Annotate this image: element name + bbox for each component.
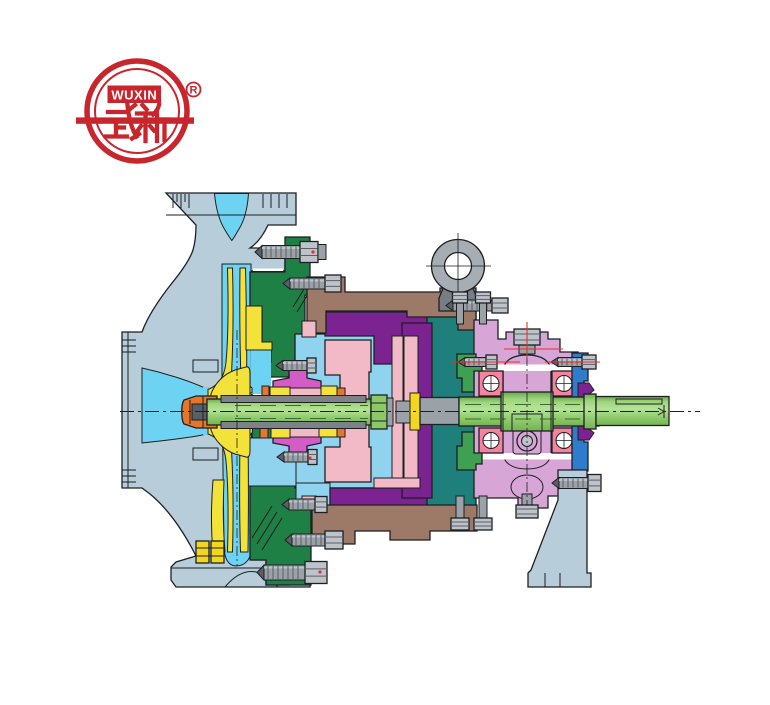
svg-text:WUXIN: WUXIN bbox=[111, 88, 157, 103]
svg-text:R: R bbox=[190, 85, 198, 97]
